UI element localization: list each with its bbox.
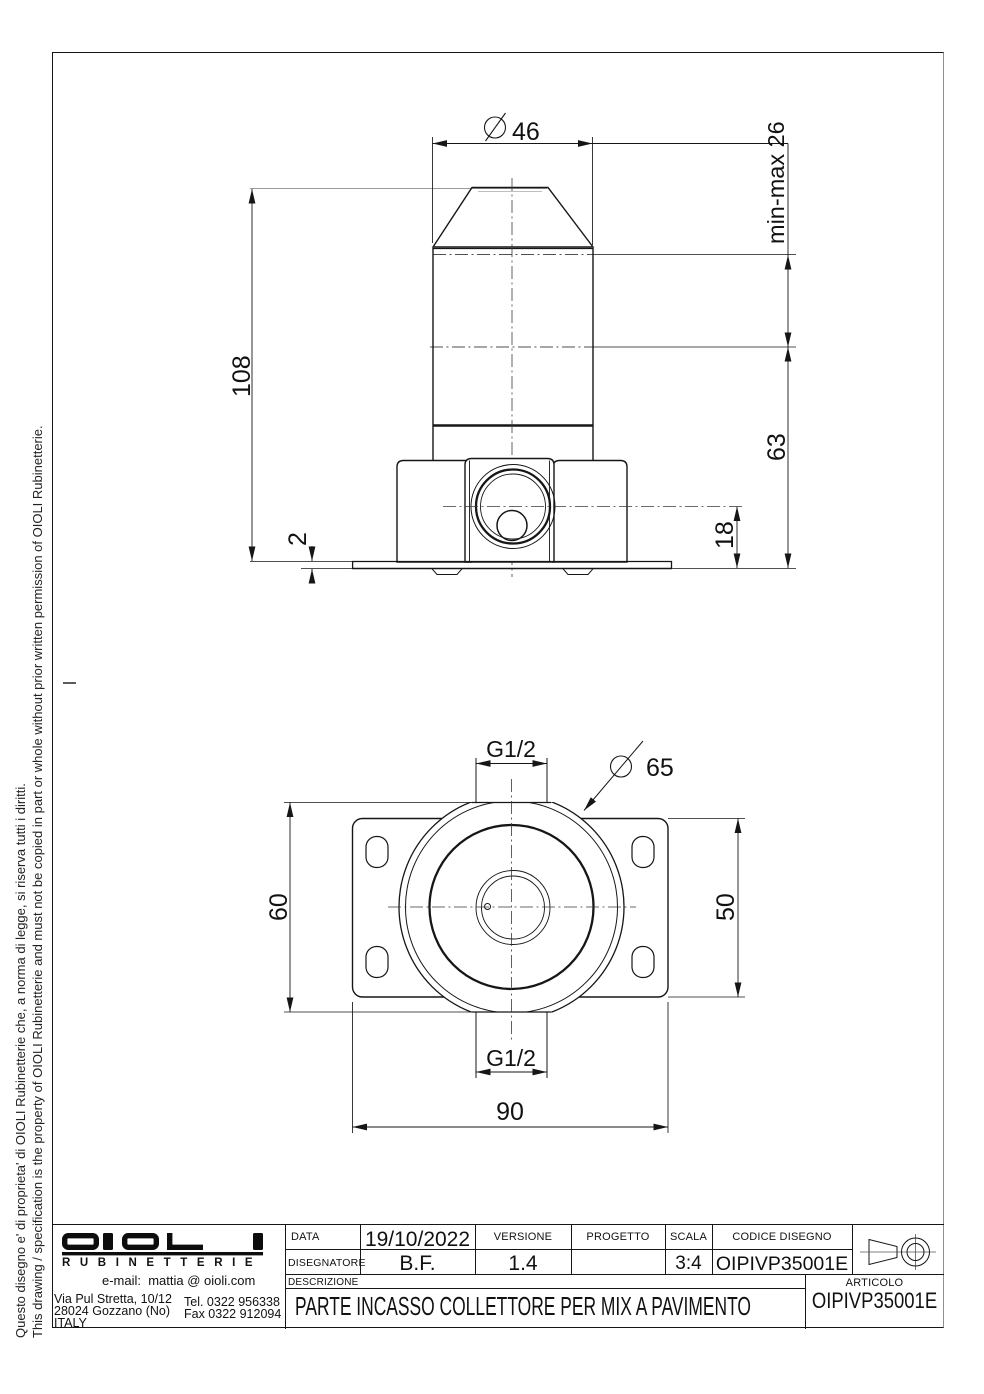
titleblock-top-line xyxy=(52,1224,944,1225)
progetto-text: PROGETTO xyxy=(586,1231,649,1243)
versione-text: VERSIONE xyxy=(494,1231,552,1243)
field-data-label: DATA xyxy=(291,1231,320,1243)
codice-text: CODICE DISEGNO xyxy=(732,1231,831,1243)
field-scala-value: 3:4 xyxy=(665,1253,712,1275)
copyright-note: Questo disegno e' di proprieta' di OIOLI… xyxy=(12,328,46,1338)
tb-divider-logo xyxy=(285,1224,286,1329)
version-value: 1.4 xyxy=(508,1252,537,1276)
field-codice-label: CODICE DISEGNO xyxy=(712,1231,852,1243)
company-address-line3: ITALY xyxy=(54,1316,87,1330)
logo-letters xyxy=(62,1233,263,1255)
tb-descrizione-underline xyxy=(285,1288,805,1289)
field-versione-label: VERSIONE xyxy=(475,1231,571,1243)
field-descrizione-value: PARTE INCASSO COLLETTORE PER MIX A PAVIM… xyxy=(295,1291,751,1322)
date-value: 19/10/2022 xyxy=(365,1228,470,1252)
company-logo xyxy=(62,1233,263,1257)
copyright-english: This drawing / specification is the prop… xyxy=(29,328,46,1338)
field-scala-label: SCALA xyxy=(665,1231,712,1243)
designer-value: B.F. xyxy=(399,1252,435,1276)
brand-subtitle: RUBINETTERIE xyxy=(62,1257,262,1269)
field-versione-value: 1.4 xyxy=(475,1252,571,1276)
field-progetto-label: PROGETTO xyxy=(571,1231,665,1243)
field-descrizione-label: DESCRIZIONE xyxy=(288,1277,359,1288)
article-code-value: OIPIVP35001E xyxy=(812,1288,937,1314)
scale-value: 3:4 xyxy=(675,1253,701,1275)
drawing-code-value: OIPIVP35001E xyxy=(716,1253,848,1276)
field-data-value: 19/10/2022 xyxy=(360,1228,475,1252)
company-fax: Fax 0322 912094 xyxy=(184,1307,281,1321)
field-articolo-value: OIPIVP35001E xyxy=(816,1288,933,1314)
logo-underline xyxy=(62,1252,263,1255)
copyright-italian: Questo disegno e' di proprieta' di OIOLI… xyxy=(12,328,29,1338)
drawing-frame xyxy=(52,52,944,1328)
field-disegnatore-value: B.F. xyxy=(360,1252,475,1276)
scala-text: SCALA xyxy=(670,1231,707,1243)
company-email: e-mail: mattia @ oioli.com xyxy=(102,1273,255,1288)
field-codice-value: OIPIVP35001E xyxy=(712,1253,852,1276)
field-disegnatore-label: DISEGNATORE xyxy=(288,1257,366,1269)
drawing-sheet: { "drawing": { "side_view": { "dia_top":… xyxy=(0,0,984,1394)
